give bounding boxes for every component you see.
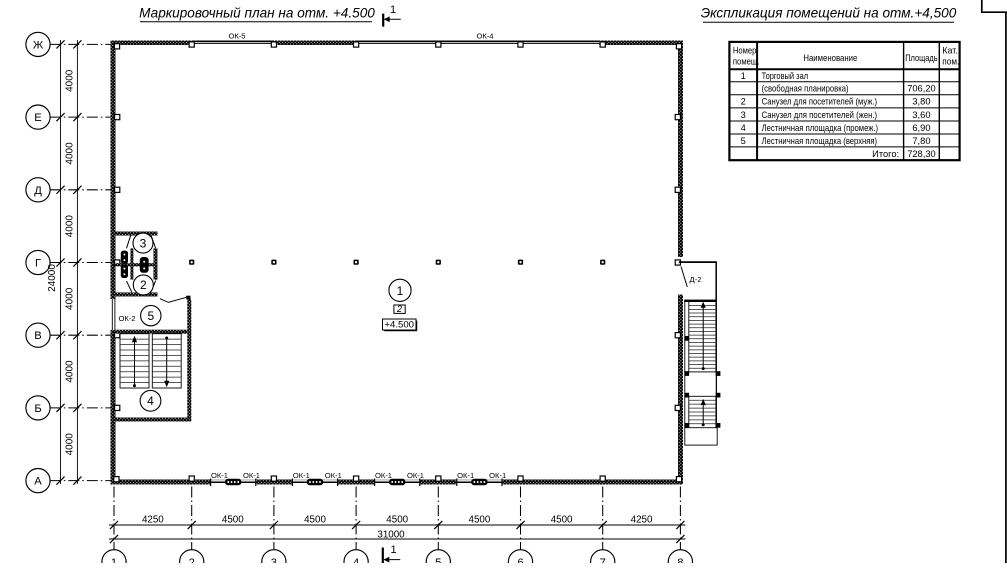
svg-text:6,90: 6,90 [912, 123, 930, 133]
svg-text:В: В [34, 330, 41, 342]
svg-text:А: А [34, 476, 42, 488]
svg-text:ОК-1: ОК-1 [243, 471, 260, 480]
svg-text:ОК-1: ОК-1 [407, 471, 424, 480]
svg-text:24000: 24000 [47, 264, 58, 292]
svg-text:Экспликация помещений на отм.+: Экспликация помещений на отм.+4,500 [701, 6, 957, 21]
svg-text:ОК-4: ОК-4 [476, 32, 493, 41]
svg-text:Е: Е [34, 112, 41, 124]
svg-text:1: 1 [390, 4, 396, 16]
svg-text:4000: 4000 [64, 215, 75, 238]
svg-text:Ж: Ж [33, 39, 44, 51]
svg-text:Торговый зал: Торговый зал [762, 71, 809, 81]
svg-text:ОК-2: ОК-2 [118, 314, 135, 323]
svg-text:ОК-1: ОК-1 [375, 471, 392, 480]
svg-text:8: 8 [677, 557, 683, 563]
svg-text:4500: 4500 [386, 514, 408, 525]
svg-text:7: 7 [600, 557, 606, 563]
svg-text:4000: 4000 [64, 69, 75, 92]
svg-text:2: 2 [140, 278, 147, 292]
svg-text:4: 4 [353, 557, 359, 563]
svg-text:5: 5 [741, 136, 746, 146]
svg-text:Д-2: Д-2 [690, 275, 702, 284]
svg-text:2: 2 [741, 97, 746, 107]
svg-text:7,80: 7,80 [912, 136, 930, 146]
svg-text:4500: 4500 [469, 514, 491, 525]
svg-text:Санузел для посетителей (муж.): Санузел для посетителей (муж.) [762, 97, 878, 107]
svg-text:1: 1 [397, 284, 404, 298]
svg-text:Маркировочный план на отм. +4.: Маркировочный план на отм. +4.500 [139, 6, 375, 21]
svg-text:(свободная планировка): (свободная планировка) [762, 84, 849, 94]
svg-text:4500: 4500 [222, 514, 244, 525]
svg-text:Итого:: Итого: [872, 149, 899, 159]
svg-text:1: 1 [741, 71, 746, 81]
svg-text:6: 6 [517, 557, 523, 563]
svg-text:4000: 4000 [64, 142, 75, 165]
svg-text:2: 2 [189, 557, 195, 563]
svg-text:31000: 31000 [377, 529, 405, 540]
svg-text:4250: 4250 [142, 514, 164, 525]
svg-text:3: 3 [741, 110, 746, 120]
svg-text:4: 4 [741, 123, 746, 133]
svg-text:Санузел для посетителей (жен.): Санузел для посетителей (жен.) [762, 110, 878, 120]
svg-text:1: 1 [390, 544, 396, 556]
svg-text:4: 4 [147, 394, 154, 408]
svg-text:ОК-1: ОК-1 [325, 471, 342, 480]
svg-text:728,30: 728,30 [907, 149, 935, 159]
svg-text:3,60: 3,60 [912, 110, 930, 120]
svg-text:3: 3 [140, 236, 147, 250]
svg-text:4500: 4500 [304, 514, 326, 525]
svg-text:4000: 4000 [64, 433, 75, 456]
svg-text:+4.500: +4.500 [384, 319, 414, 330]
svg-text:706,20: 706,20 [907, 84, 935, 94]
svg-text:5: 5 [435, 557, 441, 563]
svg-text:Д: Д [34, 185, 42, 197]
svg-text:Лестничная площадка (верхняя): Лестничная площадка (верхняя) [762, 136, 878, 146]
svg-text:пом.: пом. [942, 57, 959, 67]
svg-text:помещ.: помещ. [733, 57, 760, 67]
svg-text:ОК-1: ОК-1 [293, 471, 310, 480]
svg-text:ОК-5: ОК-5 [228, 32, 245, 41]
svg-text:ОК-1: ОК-1 [211, 471, 228, 480]
svg-text:Б: Б [34, 403, 41, 415]
svg-text:Наименование: Наименование [803, 53, 857, 63]
svg-text:3,80: 3,80 [912, 97, 930, 107]
svg-text:4250: 4250 [631, 514, 653, 525]
svg-text:Площадь: Площадь [905, 53, 938, 63]
svg-text:4000: 4000 [64, 360, 75, 383]
svg-text:Номер: Номер [733, 46, 757, 56]
svg-text:ОК-1: ОК-1 [457, 471, 474, 480]
svg-text:1: 1 [111, 557, 117, 563]
svg-text:4000: 4000 [64, 287, 75, 310]
svg-text:Кат.: Кат. [942, 46, 958, 56]
svg-text:3: 3 [271, 557, 277, 563]
svg-text:Лестничная площадка (промеж.): Лестничная площадка (промеж.) [762, 123, 879, 133]
svg-text:4500: 4500 [551, 514, 573, 525]
svg-text:ОК-1: ОК-1 [489, 471, 506, 480]
svg-text:5: 5 [147, 309, 154, 323]
svg-text:2: 2 [396, 304, 402, 314]
svg-text:Г: Г [35, 258, 41, 270]
